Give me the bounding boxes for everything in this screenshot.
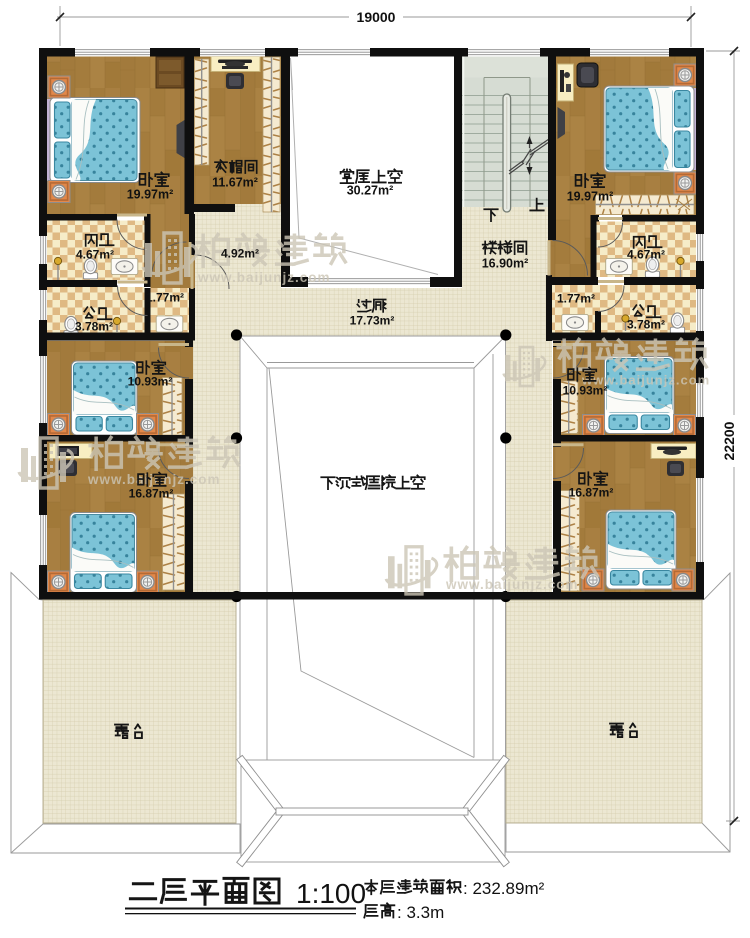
svg-text:17.73m²: 17.73m² [350,313,395,327]
svg-text:3.78m²: 3.78m² [627,317,665,331]
svg-text:16.87m²: 16.87m² [569,485,614,499]
svg-text:10.93m²: 10.93m² [128,374,173,388]
svg-text:1.77m²: 1.77m² [557,291,595,305]
svg-text:19000: 19000 [357,9,396,25]
svg-text:22200: 22200 [721,421,737,460]
svg-text:16.87m²: 16.87m² [129,486,174,500]
svg-text:www.baijunjz.com: www.baijunjz.com [197,270,331,285]
svg-text:www.baijunjz.com: www.baijunjz.com [445,577,579,592]
svg-text:30.27m²: 30.27m² [347,184,394,198]
svg-text:4.67m²: 4.67m² [627,247,665,261]
svg-text:19.97m²: 19.97m² [127,188,174,202]
svg-text:4.67m²: 4.67m² [76,247,114,261]
svg-text:16.90m²: 16.90m² [482,257,529,271]
svg-text:: 232.89m²: : 232.89m² [463,879,545,898]
svg-text:4.92m²: 4.92m² [221,246,259,260]
svg-text:3.78m²: 3.78m² [75,319,113,333]
svg-text:10.93m²: 10.93m² [563,383,608,397]
svg-text:1:100: 1:100 [296,878,366,909]
svg-text:19.97m²: 19.97m² [567,190,614,204]
svg-text:: 3.3m: : 3.3m [397,903,444,922]
svg-text:11.67m²: 11.67m² [212,176,258,190]
svg-text:1.77m²: 1.77m² [146,290,184,304]
